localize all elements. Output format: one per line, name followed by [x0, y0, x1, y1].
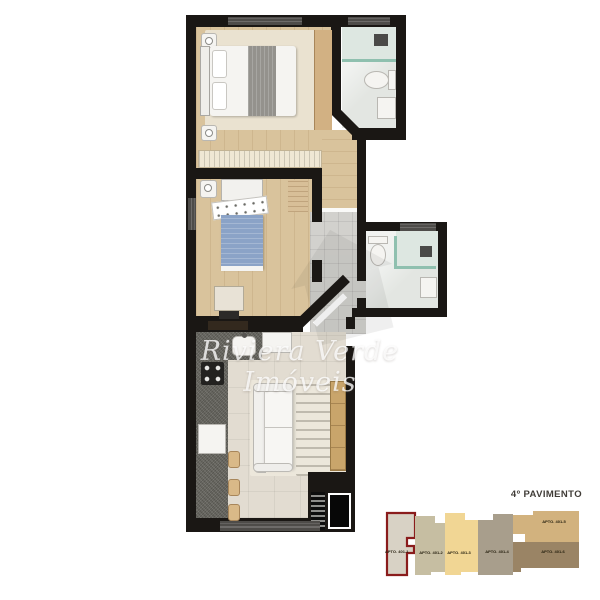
keyplan-unit-6-label: APTO. 401-6 — [540, 549, 566, 554]
lamp-icon — [205, 37, 213, 45]
window-living-balcony — [220, 521, 320, 531]
window-bathroom2 — [400, 223, 436, 231]
sofa-armrest-bottom — [253, 463, 293, 472]
bathroom2-shower-head — [420, 246, 432, 257]
bathroom1-shower-glass — [342, 59, 396, 62]
window-bedroom1 — [228, 17, 302, 25]
wall-mid-right — [357, 128, 366, 231]
bedroom2-wardrobe — [288, 180, 308, 212]
kitchen-cabinet — [198, 424, 226, 454]
bedroom1-closet — [314, 30, 332, 130]
ac-niche — [328, 493, 351, 529]
keyplan-unit-5-label: APTO. 401-5 — [541, 519, 567, 524]
keyplan-unit-3 — [445, 513, 478, 575]
bedroom2-tv — [219, 311, 239, 319]
lamp-icon — [204, 184, 212, 192]
window-bathroom1 — [348, 17, 390, 25]
keyplan-unit-4-label: APTO. 401-4 — [485, 549, 509, 554]
tv-console — [330, 381, 346, 471]
bedroom1-bed-runner — [248, 46, 276, 116]
kitchen-faucet — [242, 333, 247, 338]
wall-bathroom1-left — [331, 20, 341, 112]
kitchen-window-strip — [208, 321, 248, 330]
keyplan-diagram — [383, 487, 583, 582]
sofa-seat — [264, 387, 293, 469]
wall-bathroom1-right — [396, 15, 406, 140]
kitchen-stool-3 — [228, 504, 240, 521]
bedroom1-pillow-1 — [212, 50, 227, 78]
corridor-floor — [322, 130, 357, 212]
bedroom2-nightstand — [200, 180, 217, 198]
bedroom2-bed-foot-sheet — [221, 266, 263, 271]
window-bedroom2 — [188, 198, 196, 230]
bedroom2-dresser — [214, 286, 244, 311]
bathroom1-toilet-bowl — [364, 71, 389, 89]
keyplan-unit-3-label: APTO. 401-3 — [447, 550, 471, 555]
bedroom2-bed-duvet — [221, 215, 263, 269]
wall-bathroom2-right — [438, 222, 447, 317]
bathroom2-shower-glass-horizontal — [394, 266, 436, 269]
bedroom1-pillow-2 — [212, 82, 227, 110]
keyplan-unit-4 — [478, 514, 513, 575]
kitchen-fridge — [262, 332, 292, 353]
wall-bedroom1-divider — [186, 168, 322, 179]
bathroom2-sink — [420, 277, 437, 298]
sofa-armrest-top — [253, 383, 293, 392]
bedroom1-bed-headboard — [200, 46, 210, 116]
bathroom1-sink — [377, 97, 396, 119]
kitchen-sink — [232, 336, 256, 356]
wall-left — [186, 15, 196, 532]
kitchen-cooktop — [201, 362, 224, 385]
sofa-cushion-divider — [264, 427, 293, 428]
keyplan-unit-2-label: APTO. 401-2 — [419, 550, 443, 555]
kitchen-stool-1 — [228, 451, 240, 468]
wall-bedroom2-right-upper — [312, 168, 322, 222]
bathroom1-shower-head — [374, 34, 388, 46]
kitchen-stool-2 — [228, 479, 240, 496]
bedroom1-wardrobe — [198, 150, 322, 168]
bedroom1-nightstand-bottom — [201, 125, 217, 141]
keyplan-unit-1 — [387, 513, 415, 575]
keyplan-unit-1-label: APTO. 401-1 — [385, 549, 407, 554]
bathroom1-toilet-tank — [388, 70, 396, 90]
floorplan-canvas: Riviera Verde Imóveis 4º PAVIMENTO APTO.… — [0, 0, 600, 600]
keyplan-unit-5 — [513, 511, 579, 542]
keyplan-unit-6 — [513, 542, 579, 572]
lamp-icon — [205, 129, 213, 137]
keyplan-unit-2 — [415, 516, 445, 575]
corridor-threshold — [322, 208, 357, 212]
bathroom2-shower-glass-vertical — [394, 236, 397, 268]
